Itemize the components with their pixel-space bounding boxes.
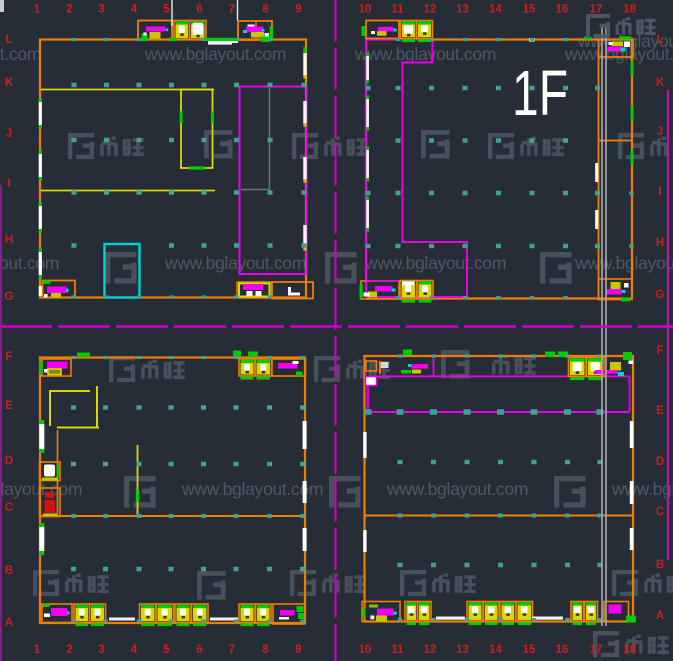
svg-text:F: F <box>5 351 12 363</box>
svg-text:I: I <box>7 178 10 190</box>
svg-text:F: F <box>656 345 663 357</box>
svg-text:5: 5 <box>163 644 170 656</box>
svg-text:A: A <box>656 610 664 622</box>
svg-text:5: 5 <box>163 4 170 16</box>
svg-text:11: 11 <box>391 644 404 656</box>
svg-text:G: G <box>656 289 665 301</box>
svg-text:18: 18 <box>623 4 636 16</box>
svg-text:www.bglayout.com: www.bglayout.com <box>611 479 673 499</box>
svg-text:E: E <box>5 400 13 412</box>
svg-text:16: 16 <box>556 4 569 16</box>
svg-text:J: J <box>6 128 12 140</box>
svg-text:4: 4 <box>131 4 138 16</box>
svg-text:9: 9 <box>295 4 301 16</box>
svg-text:15: 15 <box>523 4 536 16</box>
svg-text:L: L <box>656 34 663 46</box>
svg-text:www.bglayout.com: www.bglayout.com <box>354 44 496 64</box>
svg-text:2: 2 <box>66 644 72 656</box>
svg-text:C: C <box>656 506 664 518</box>
svg-text:K: K <box>5 77 14 89</box>
svg-text:H: H <box>656 237 664 249</box>
svg-text:www.bglayout.com: www.bglayout.com <box>386 479 528 499</box>
svg-text:14: 14 <box>489 4 502 16</box>
svg-text:6: 6 <box>196 4 202 16</box>
svg-text:K: K <box>656 77 665 89</box>
svg-text:G: G <box>5 291 14 303</box>
svg-text:1: 1 <box>34 644 41 656</box>
svg-text:6: 6 <box>196 644 202 656</box>
svg-text:3: 3 <box>98 644 104 656</box>
svg-text:18: 18 <box>623 644 636 656</box>
svg-text:16: 16 <box>556 644 569 656</box>
svg-text:8: 8 <box>262 644 269 656</box>
svg-text:I: I <box>658 186 661 198</box>
svg-text:8: 8 <box>262 4 269 16</box>
svg-text:E: E <box>656 405 664 417</box>
svg-text:D: D <box>5 455 13 467</box>
svg-text:C: C <box>5 502 13 514</box>
svg-text:11: 11 <box>391 4 404 16</box>
svg-text:B: B <box>656 559 664 571</box>
svg-text:7: 7 <box>229 4 235 16</box>
svg-text:13: 13 <box>456 4 469 16</box>
svg-text:A: A <box>5 617 13 629</box>
svg-text:12: 12 <box>424 644 437 656</box>
svg-text:10: 10 <box>359 4 372 16</box>
svg-text:4: 4 <box>131 644 138 656</box>
svg-text:12: 12 <box>424 4 437 16</box>
svg-text:L: L <box>5 34 12 46</box>
svg-text:10: 10 <box>359 644 372 656</box>
svg-text:2: 2 <box>66 4 72 16</box>
svg-text:17: 17 <box>590 644 603 656</box>
svg-text:www.bglayout.com: www.bglayout.com <box>164 253 306 273</box>
svg-text:www.bglayout.com: www.bglayout.com <box>181 479 323 499</box>
svg-text:7: 7 <box>229 644 235 656</box>
svg-text:3: 3 <box>98 4 104 16</box>
svg-text:B: B <box>5 565 13 577</box>
svg-text:www.bglayout.com: www.bglayout.com <box>364 253 506 273</box>
svg-text:H: H <box>5 234 13 246</box>
svg-text:13: 13 <box>456 644 469 656</box>
svg-text:www.bglayout.com: www.bglayout.com <box>144 44 286 64</box>
svg-text:www.bglayout.com: www.bglayout.com <box>0 44 41 64</box>
svg-text:15: 15 <box>523 644 536 656</box>
svg-text:9: 9 <box>295 644 301 656</box>
svg-text:www.bglayout.com: www.bglayout.com <box>574 253 673 273</box>
svg-text:14: 14 <box>489 644 502 656</box>
svg-text:J: J <box>657 126 663 138</box>
svg-text:D: D <box>656 456 664 468</box>
svg-text:1F: 1F <box>512 57 568 129</box>
svg-text:www.bglayout.com: www.bglayout.com <box>0 253 59 273</box>
svg-text:1: 1 <box>34 4 41 16</box>
svg-text:17: 17 <box>590 4 603 16</box>
